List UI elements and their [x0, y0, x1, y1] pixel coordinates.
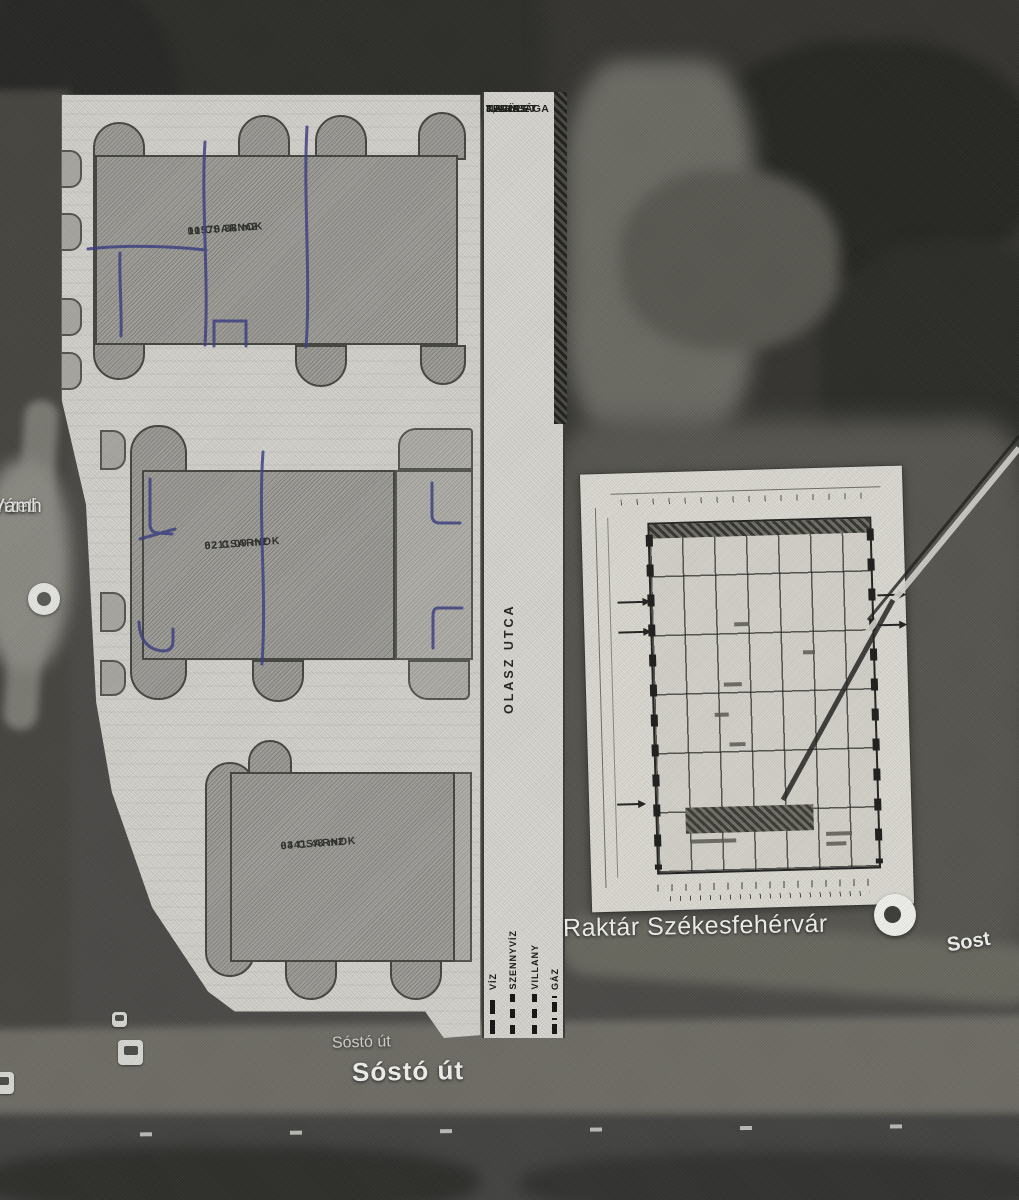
left-poi-line2: Vámh	[0, 494, 42, 520]
building-03-annex	[452, 772, 472, 962]
poi-circle-icon[interactable]	[28, 583, 60, 615]
building-02-annex	[395, 470, 473, 660]
building-01-area: 10570.38 m2	[187, 220, 259, 241]
street-label-sosto-small: Sóstó út	[332, 1033, 391, 1053]
dimension-ticks	[621, 492, 871, 505]
entry-arrow	[878, 624, 900, 627]
plan-annotation	[729, 742, 745, 746]
tree-band-bottom	[0, 1146, 480, 1200]
dimension-line	[595, 508, 607, 888]
strip-shadow-band	[554, 92, 567, 424]
legend-label-villany: VILLANY	[530, 944, 540, 990]
plan-annotation	[724, 682, 742, 687]
cleared-ground	[620, 170, 840, 350]
plan-bottom-wall	[685, 804, 814, 834]
plan-top-wall	[649, 519, 869, 539]
building-01-dock	[295, 345, 347, 387]
building-02: 02 CSARNOK 5211.09 m2	[142, 470, 395, 660]
utilities-legend: VÍZ SZENNYVÍZ VILLANY GÁZ	[484, 884, 567, 1036]
site-plan-sheet: 01 CSARNOK 10570.38 m2 02 CSARNOK 5211.0…	[58, 92, 482, 1038]
dimension-text-smudge	[826, 831, 852, 836]
warehouse-map-label[interactable]: Raktár Székesfehérvár	[563, 910, 828, 944]
left-buildings	[0, 460, 70, 670]
column-row-right	[867, 528, 883, 863]
column-row-left	[646, 535, 662, 870]
bus-stop-icon[interactable]	[118, 1040, 143, 1065]
entry-arrow	[617, 803, 639, 806]
map-pin-icon[interactable]	[874, 894, 916, 936]
dimension-ticks	[657, 878, 881, 891]
transit-icon-partial	[0, 1072, 14, 1094]
dimension-text-smudge	[826, 841, 846, 846]
plan-annotation	[715, 713, 729, 717]
legend-line-viz	[490, 994, 495, 1034]
plan-annotation	[803, 650, 815, 654]
olasz-utca-strip: TELJES TERÜLET NAGYSÁGA 3,8 HA OLASZ UTC…	[482, 92, 565, 1038]
entry-arrow	[877, 594, 899, 597]
building-03-area: 6441.48 m2	[280, 835, 345, 855]
building-03-dock	[285, 960, 337, 1000]
olasz-utca-label: OLASZ UTCA	[502, 554, 516, 714]
warehouse-floor-plan-sheet	[580, 466, 914, 913]
street-label-sosto-large: Sóstó út	[352, 1055, 465, 1088]
building-01-dock	[315, 115, 367, 160]
legend-label-viz: VÍZ	[488, 973, 498, 990]
dimension-line	[607, 518, 618, 878]
parking-island	[100, 592, 126, 632]
building-01: 01 CSARNOK 10570.38 m2	[95, 155, 458, 345]
building-01-dock	[418, 112, 466, 160]
warehouse-grid-plan	[647, 516, 881, 874]
bus-stop-icon[interactable]	[112, 1012, 127, 1027]
building-01-dock	[238, 115, 290, 160]
parking-island	[100, 660, 126, 696]
satellite-site-plan: 01 CSARNOK 10570.38 m2 02 CSARNOK 5211.0…	[0, 0, 1019, 1200]
legend-label-gaz: GÁZ	[550, 968, 560, 990]
building-02-dock	[398, 428, 473, 470]
entry-arrow	[618, 631, 644, 634]
building-02-dock	[408, 660, 470, 700]
building-02-dock	[252, 660, 304, 702]
building-02-area: 5211.09 m2	[204, 535, 268, 555]
area-note-line: 3,8 HA	[486, 102, 520, 118]
legend-line-gaz	[552, 994, 557, 1034]
building-03: 03 CSARNOK 6441.48 m2	[230, 772, 455, 962]
tree-band-bottom	[520, 1152, 1019, 1200]
legend-line-szennyviz	[510, 994, 515, 1034]
building-01-dock	[420, 345, 466, 385]
entry-arrow	[618, 601, 644, 604]
plan-annotation	[734, 622, 748, 626]
dimension-ticks	[670, 891, 870, 902]
legend-line-villany	[532, 994, 537, 1034]
parking-island	[100, 430, 126, 470]
building-03-dock	[248, 740, 292, 774]
legend-label-szennyviz: SZENNYVÍZ	[508, 930, 518, 990]
building-03-dock	[390, 960, 442, 1000]
